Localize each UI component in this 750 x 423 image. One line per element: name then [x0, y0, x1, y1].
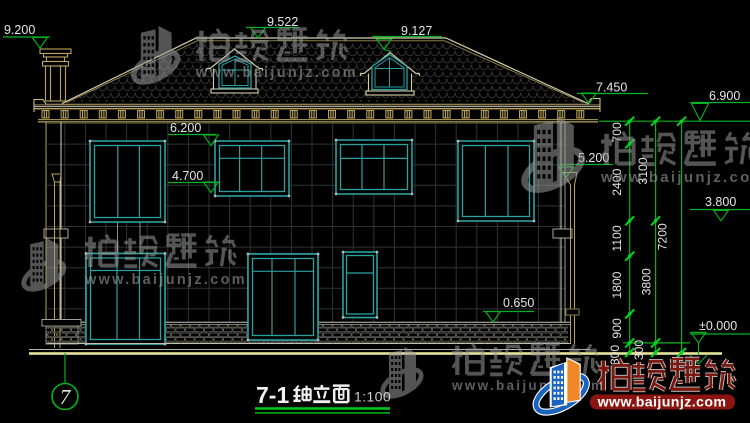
svg-text:7200: 7200 — [656, 223, 670, 250]
svg-text:www.baijunjz.com: www.baijunjz.com — [597, 395, 727, 411]
svg-text:www.baijunjz.com: www.baijunjz.com — [600, 169, 750, 186]
svg-text:900: 900 — [610, 318, 624, 339]
svg-text:0.650: 0.650 — [503, 296, 534, 310]
svg-text:6.200: 6.200 — [170, 121, 201, 135]
svg-text:www.baijunjz.com: www.baijunjz.com — [195, 65, 358, 81]
svg-text:±0.000: ±0.000 — [699, 319, 737, 333]
svg-text:7-1: 7-1 — [256, 382, 289, 408]
svg-text:6.900: 6.900 — [709, 89, 740, 103]
svg-text:4.700: 4.700 — [172, 169, 203, 183]
svg-text:300: 300 — [632, 340, 646, 361]
svg-text:3.800: 3.800 — [705, 195, 736, 209]
svg-text:7: 7 — [60, 385, 72, 409]
svg-text:9.200: 9.200 — [4, 23, 35, 37]
svg-text:1:100: 1:100 — [354, 390, 391, 406]
svg-text:www.baijunjz.com: www.baijunjz.com — [84, 272, 247, 288]
svg-text:1100: 1100 — [610, 225, 624, 251]
svg-text:1800: 1800 — [610, 271, 624, 298]
svg-text:7.450: 7.450 — [596, 81, 627, 95]
svg-text:3800: 3800 — [640, 268, 654, 295]
